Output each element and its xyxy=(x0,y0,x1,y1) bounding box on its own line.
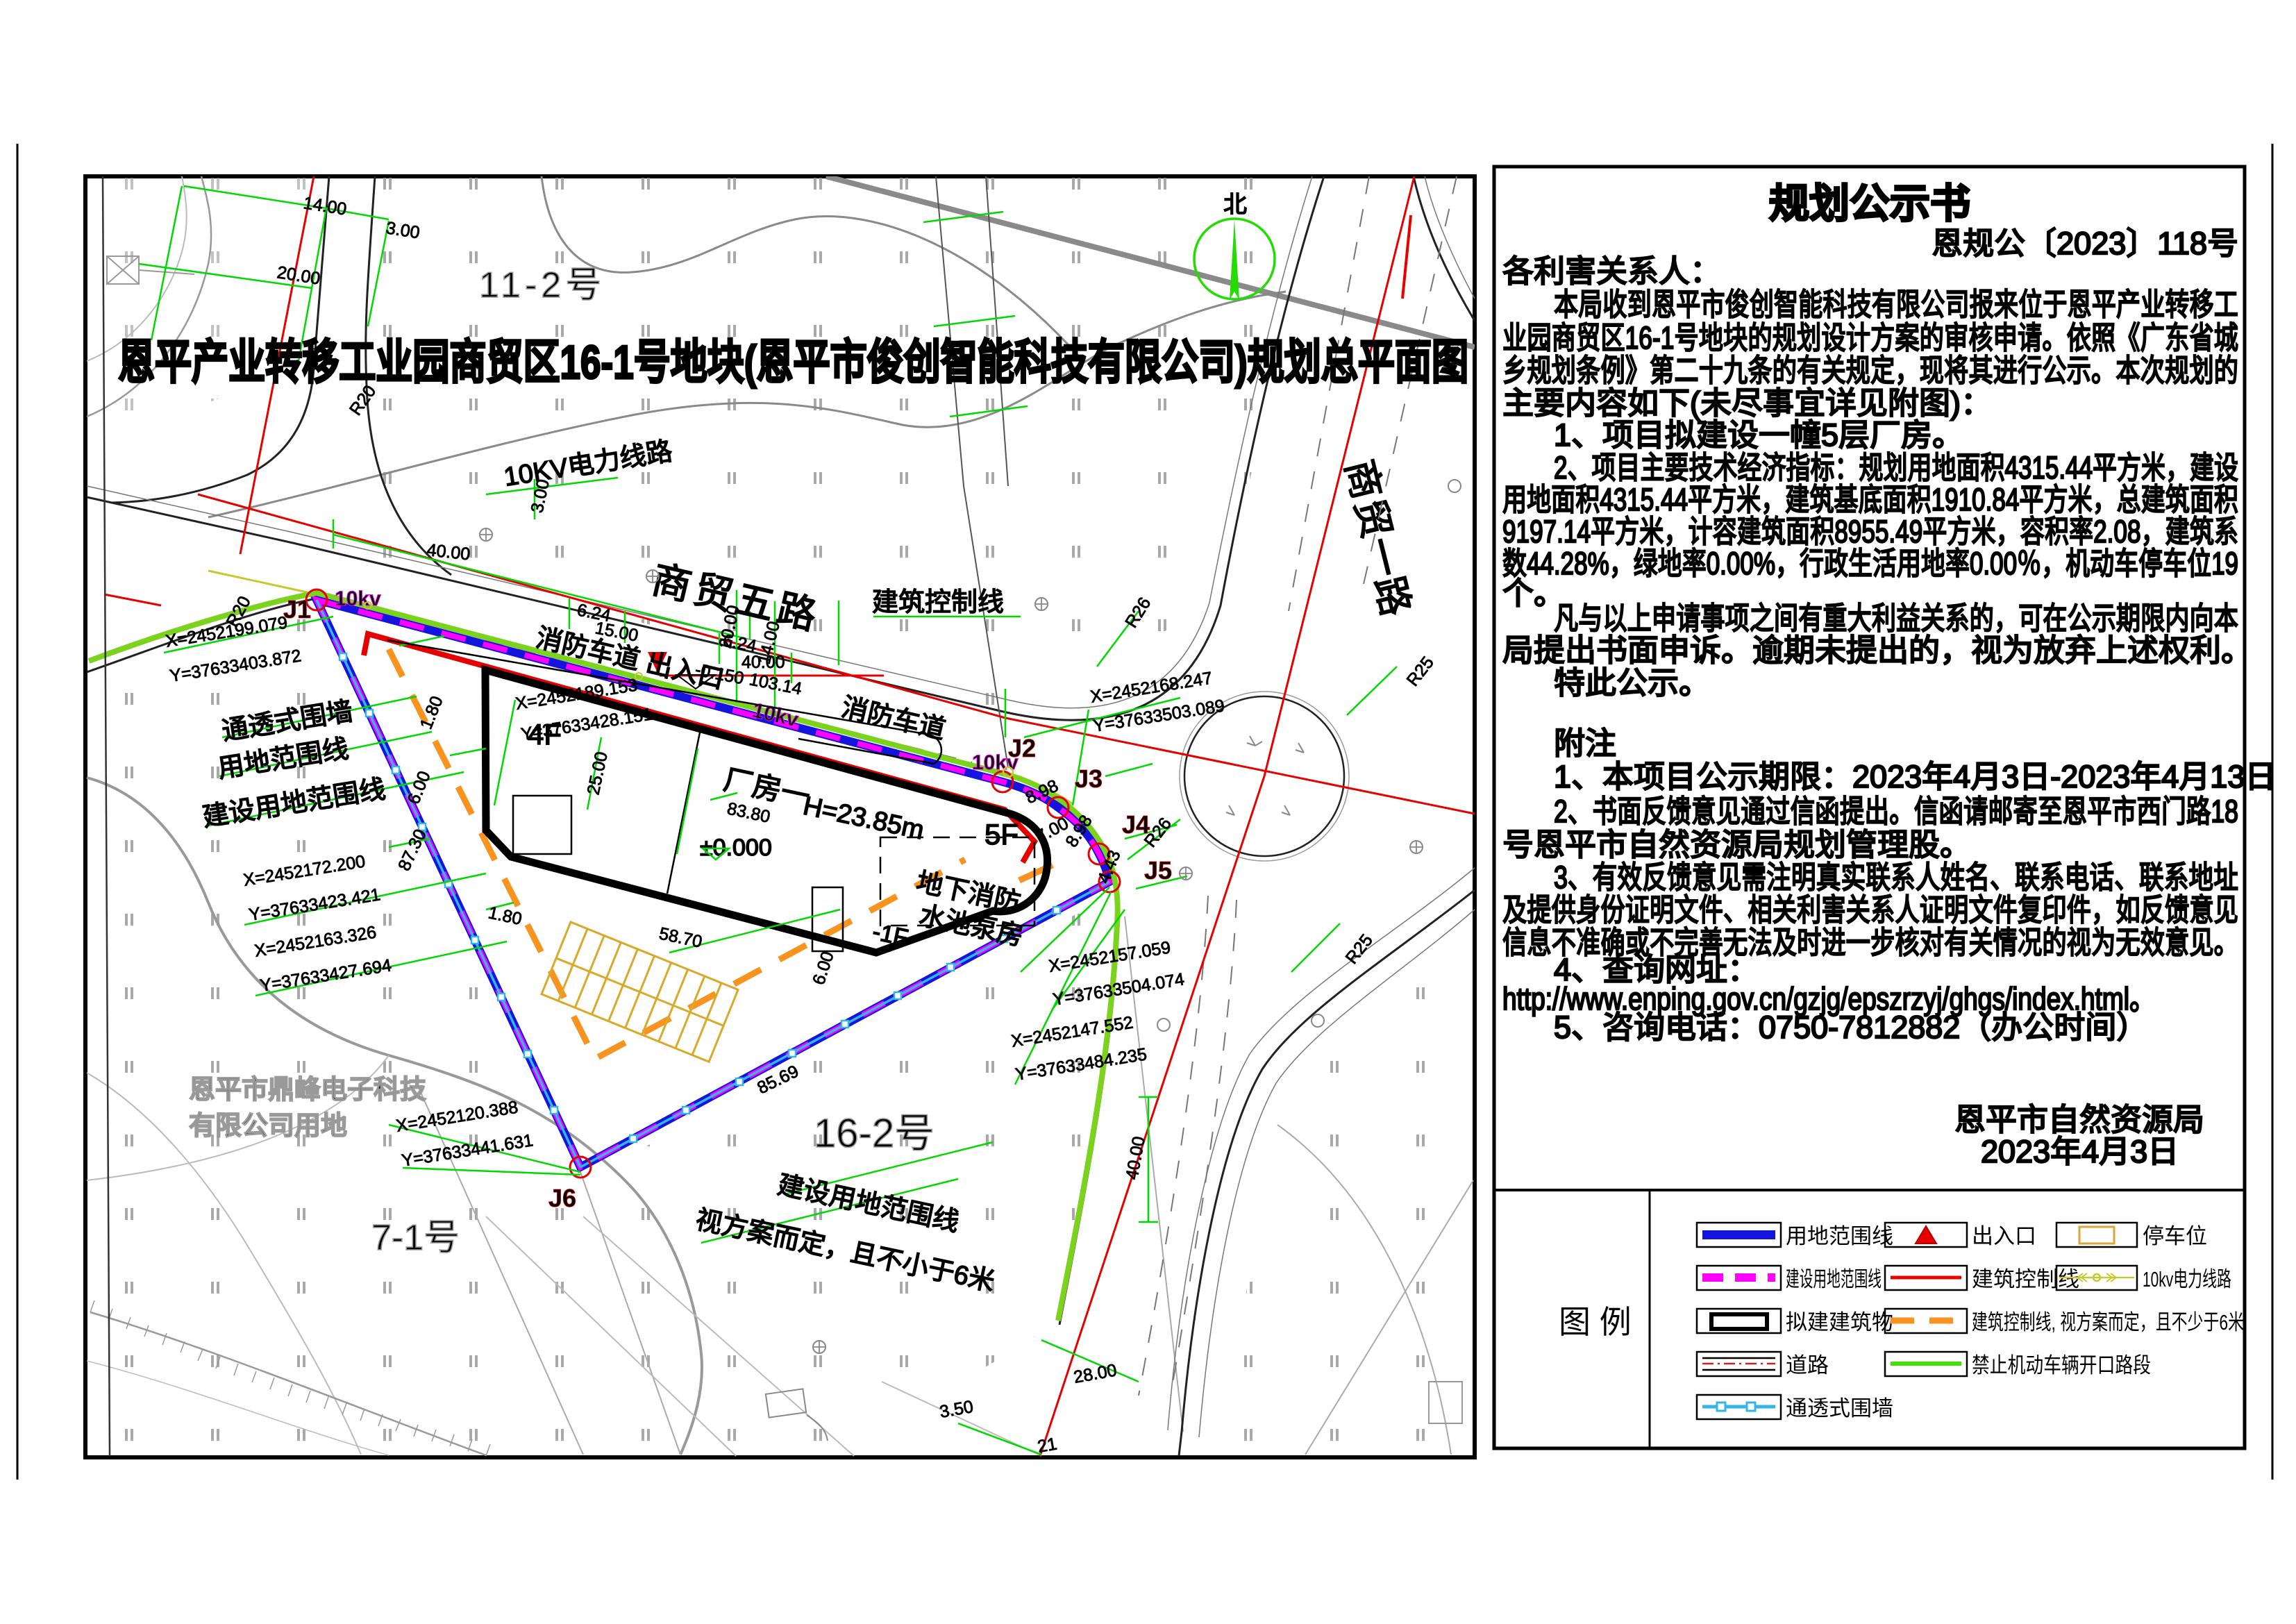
svg-text:乡规划条例》第二十九条的有关规定，现将其进行公示。本次规划的: 乡规划条例》第二十九条的有关规定，现将其进行公示。本次规划的 xyxy=(1502,353,2238,388)
svg-text:规划公示书: 规划公示书 xyxy=(1769,181,1970,226)
svg-text:通透式围墙: 通透式围墙 xyxy=(1786,1396,1893,1421)
svg-text:10kv电力线路: 10kv电力线路 xyxy=(2143,1267,2231,1291)
svg-text:2、书面反馈意见通过信函提出。信函请邮寄至恩平市西门路18: 2、书面反馈意见通过信函提出。信函请邮寄至恩平市西门路18 xyxy=(1554,794,2238,829)
svg-text:1、本项目公示期限：2023年4月3日-2023年4月13日: 1、本项目公示期限：2023年4月3日-2023年4月13日 xyxy=(1554,759,2276,794)
svg-text:7-1号: 7-1号 xyxy=(371,1218,460,1258)
svg-text:恩平产业转移工业园商贸区16-1号地块(恩平市俊创智能科技有: 恩平产业转移工业园商贸区16-1号地块(恩平市俊创智能科技有限公司)规划总平面图 xyxy=(118,336,1468,389)
svg-text:25.00: 25.00 xyxy=(583,750,611,796)
svg-text:11-2号: 11-2号 xyxy=(479,265,605,305)
svg-text:2、项目主要技术经济指标：规划用地面积4315.44平方米，: 2、项目主要技术经济指标：规划用地面积4315.44平方米，建设 xyxy=(1554,450,2238,485)
svg-text:拟建建筑物: 拟建建筑物 xyxy=(1786,1310,1893,1334)
svg-text:及提供身份证明文件、相关利害关系人证明文件复印件，如反馈意见: 及提供身份证明文件、相关利害关系人证明文件复印件，如反馈意见 xyxy=(1502,892,2238,928)
svg-text:R25: R25 xyxy=(1403,653,1438,689)
svg-text:恩平市自然资源局: 恩平市自然资源局 xyxy=(1954,1102,2204,1137)
svg-text:本局收到恩平市俊创智能科技有限公司报来位于恩平产业转移工: 本局收到恩平市俊创智能科技有限公司报来位于恩平产业转移工 xyxy=(1554,287,2238,322)
svg-text:J4: J4 xyxy=(1122,810,1150,839)
svg-text:2023年4月3日: 2023年4月3日 xyxy=(1981,1134,2179,1169)
svg-text:1、项目拟建设一幢5层厂房。: 1、项目拟建设一幢5层厂房。 xyxy=(1554,417,1963,453)
svg-text:J5: J5 xyxy=(1144,856,1172,885)
svg-text:停车位: 停车位 xyxy=(2143,1224,2207,1248)
svg-text:21: 21 xyxy=(1036,1434,1058,1457)
svg-text:恩规公〔2023〕118号: 恩规公〔2023〕118号 xyxy=(1932,226,2238,261)
svg-text:28.00: 28.00 xyxy=(1072,1360,1118,1387)
svg-text:6.00: 6.00 xyxy=(809,949,838,987)
svg-text:1.80: 1.80 xyxy=(487,903,523,929)
svg-text:禁止机动车辆开口路段: 禁止机动车辆开口路段 xyxy=(1972,1353,2151,1378)
svg-text:16-2号: 16-2号 xyxy=(814,1111,935,1156)
svg-text:用地范围线: 用地范围线 xyxy=(1786,1224,1893,1248)
svg-text:5F: 5F xyxy=(984,818,1019,851)
svg-text:凡与以上申请事项之间有重大利益关系的，可在公示期限内向本: 凡与以上申请事项之间有重大利益关系的，可在公示期限内向本 xyxy=(1554,601,2238,636)
svg-text:5、咨询电话：0750-7812882（办公时间）: 5、咨询电话：0750-7812882（办公时间） xyxy=(1554,1010,2147,1045)
svg-text:主要内容如下(未尽事宜详见附图)：: 主要内容如下(未尽事宜详见附图)： xyxy=(1502,385,1992,421)
svg-text:J3: J3 xyxy=(1075,764,1103,793)
svg-text:40.00: 40.00 xyxy=(1122,1135,1148,1181)
svg-text:特此公示。: 特此公示。 xyxy=(1554,665,1710,701)
svg-text:4F: 4F xyxy=(528,718,562,751)
svg-text:用地面积4315.44平方米，建筑基底面积1910.84平方: 用地面积4315.44平方米，建筑基底面积1910.84平方米，总建筑面积 xyxy=(1502,482,2238,517)
svg-text:号恩平市自然资源局规划管理股。: 号恩平市自然资源局规划管理股。 xyxy=(1502,827,1971,862)
svg-text:有限公司用地: 有限公司用地 xyxy=(189,1112,347,1141)
svg-text:建筑控制线: 建筑控制线 xyxy=(1972,1267,2079,1291)
svg-text:40.00: 40.00 xyxy=(741,653,785,672)
svg-text:58.70: 58.70 xyxy=(657,923,704,951)
svg-text:出入口: 出入口 xyxy=(1972,1224,2036,1248)
svg-text:道路: 道路 xyxy=(1786,1353,1829,1378)
svg-text:10kv: 10kv xyxy=(335,587,381,610)
svg-text:业园商贸区16-1号地块的规划设计方案的审核申请。依照《广东: 业园商贸区16-1号地块的规划设计方案的审核申请。依照《广东省城 xyxy=(1502,320,2238,355)
svg-text:14.00: 14.00 xyxy=(302,193,348,219)
svg-text:建设用地范围线: 建设用地范围线 xyxy=(1786,1267,1882,1291)
svg-text:恩平市鼎峰电子科技: 恩平市鼎峰电子科技 xyxy=(189,1075,426,1105)
svg-text:图 例: 图 例 xyxy=(1559,1304,1632,1340)
svg-text:3、有效反馈意见需注明真实联系人姓名、联系电话、联系地址: 3、有效反馈意见需注明真实联系人姓名、联系电话、联系地址 xyxy=(1554,860,2238,895)
svg-text:10kv: 10kv xyxy=(972,751,1019,774)
svg-text:北: 北 xyxy=(1223,192,1247,218)
svg-text:附注: 附注 xyxy=(1554,726,1616,761)
svg-text:J1: J1 xyxy=(283,595,311,623)
svg-text:建筑控制线, 视方案而定，且不少于6米: 建筑控制线, 视方案而定，且不少于6米 xyxy=(1972,1310,2244,1334)
svg-text:6.00: 6.00 xyxy=(404,769,435,807)
svg-text:-1F: -1F xyxy=(870,919,910,952)
svg-text:R25: R25 xyxy=(1342,930,1377,967)
svg-text:J6: J6 xyxy=(548,1184,576,1212)
svg-text:各利害关系人：: 各利害关系人： xyxy=(1502,253,1721,289)
svg-text:1.80: 1.80 xyxy=(417,694,447,733)
svg-text:局提出书面申诉。逾期未提出的，视为放弃上述权利。: 局提出书面申诉。逾期未提出的，视为放弃上述权利。 xyxy=(1502,633,2252,668)
svg-text:9197.14平方米，计容建筑面积8955.49平方米，容积: 9197.14平方米，计容建筑面积8955.49平方米，容积率2.08，建筑系 xyxy=(1502,514,2238,549)
svg-text:建筑控制线: 建筑控制线 xyxy=(872,588,1004,617)
svg-text:数44.28%，绿地率0.00%，行政生活用地率0.00％，: 数44.28%，绿地率0.00%，行政生活用地率0.00％，机动车停车位19 xyxy=(1502,546,2238,581)
svg-text:3.50: 3.50 xyxy=(938,1397,975,1422)
svg-text:H=23.85m: H=23.85m xyxy=(801,792,926,846)
